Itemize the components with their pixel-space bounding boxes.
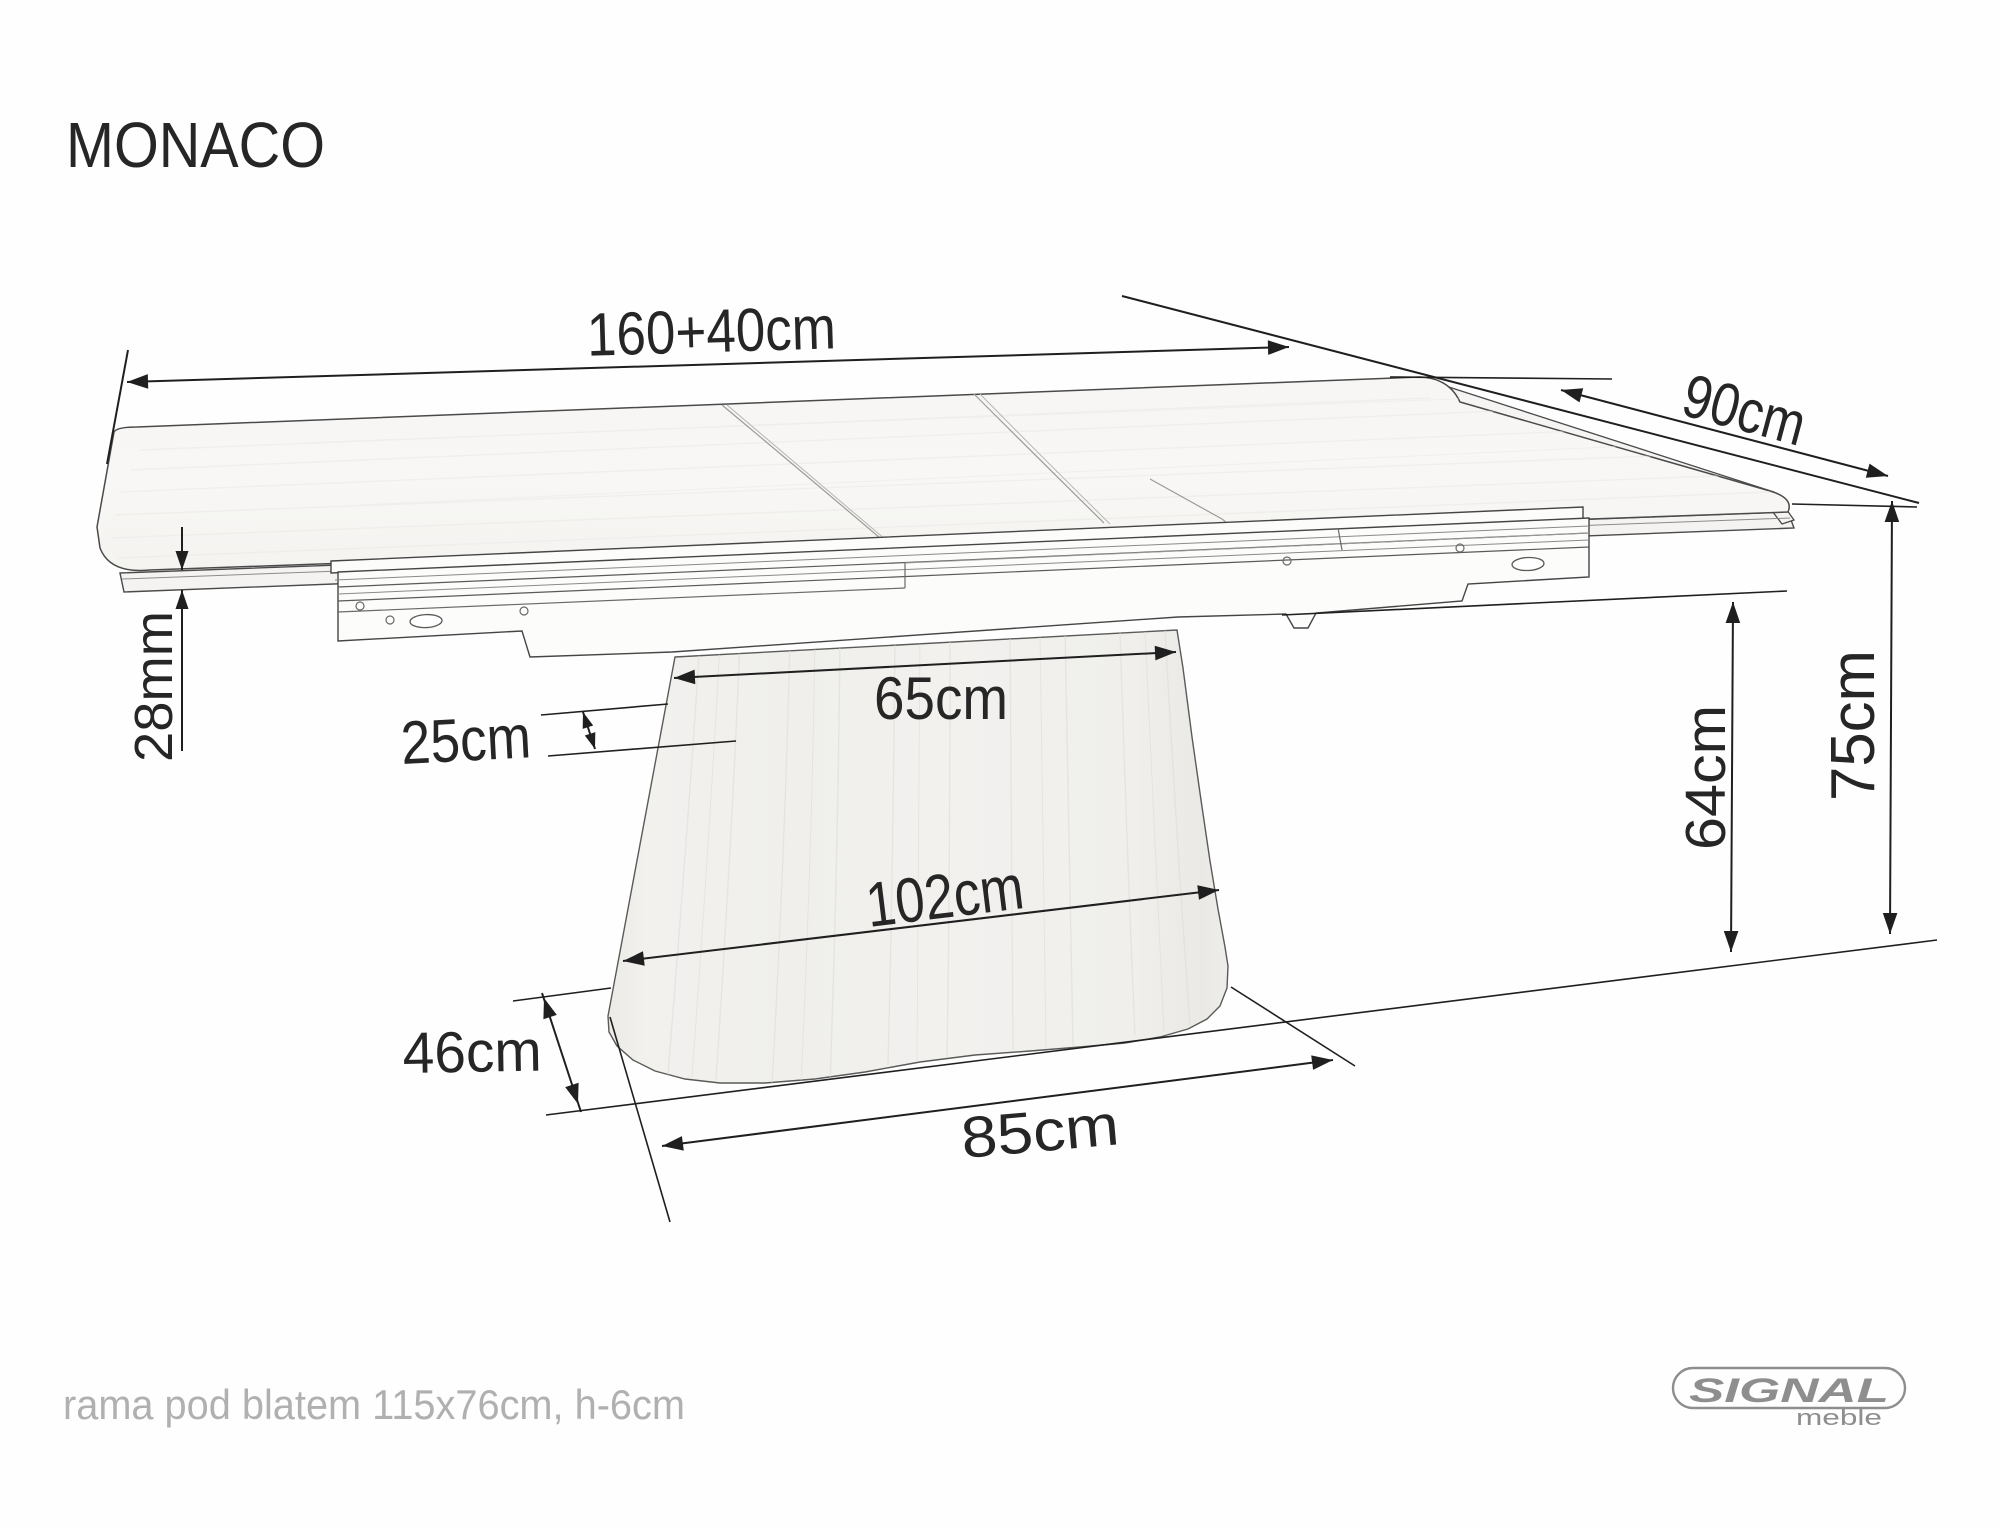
svg-text:28mm: 28mm [124,611,184,762]
svg-text:85cm: 85cm [958,1092,1121,1171]
svg-text:MONACO: MONACO [66,109,325,181]
svg-text:46cm: 46cm [402,1019,542,1086]
svg-text:64cm: 64cm [1674,705,1738,850]
svg-text:75cm: 75cm [1819,650,1888,801]
svg-text:25cm: 25cm [399,702,532,777]
svg-text:160+40cm: 160+40cm [586,293,837,368]
svg-text:meble: meble [1796,1405,1882,1430]
svg-text:rama pod blatem 115x76cm, h-6c: rama pod blatem 115x76cm, h-6cm [63,1381,685,1428]
svg-text:65cm: 65cm [874,665,1008,732]
